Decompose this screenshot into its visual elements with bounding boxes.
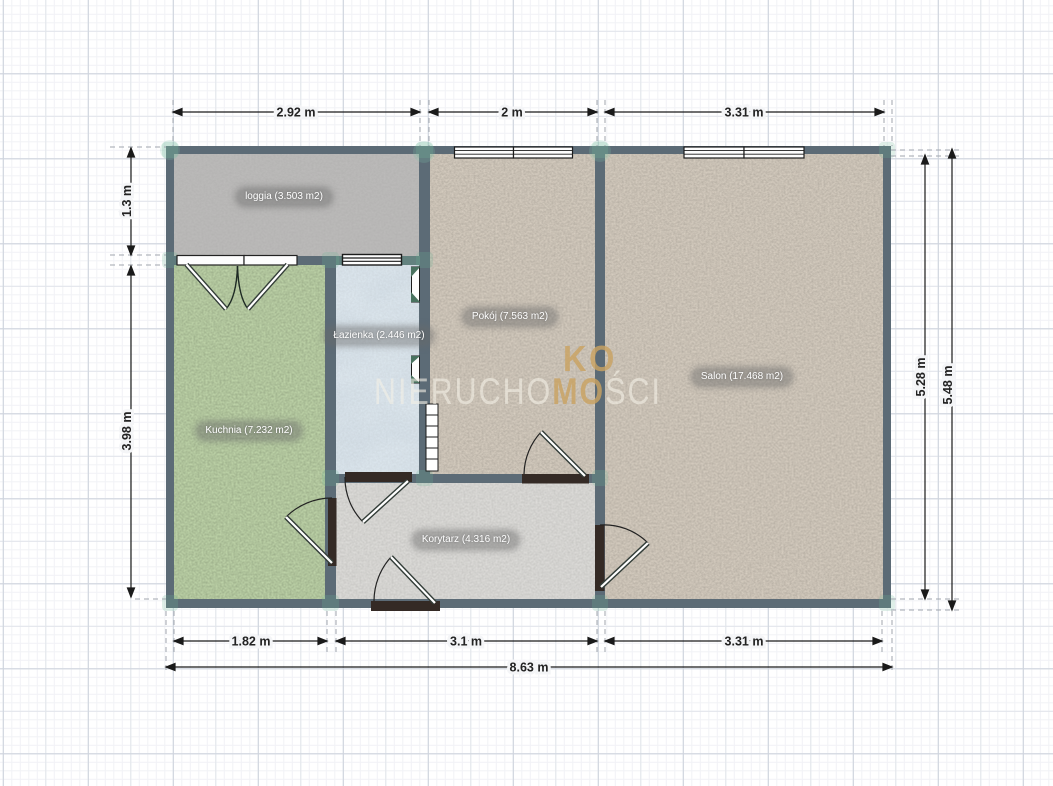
svg-text:8.63 m: 8.63 m — [510, 661, 549, 675]
svg-text:3.1 m: 3.1 m — [450, 635, 482, 649]
svg-text:3.31 m: 3.31 m — [725, 635, 764, 649]
svg-text:2.92 m: 2.92 m — [277, 106, 316, 120]
svg-text:5.28 m: 5.28 m — [914, 358, 928, 397]
svg-text:1.82 m: 1.82 m — [232, 635, 271, 649]
svg-text:5.48 m: 5.48 m — [941, 366, 955, 405]
svg-text:1.3 m: 1.3 m — [120, 185, 134, 217]
svg-text:3.98 m: 3.98 m — [120, 412, 134, 451]
svg-text:3.31 m: 3.31 m — [725, 106, 764, 120]
svg-text:2 m: 2 m — [501, 106, 523, 120]
